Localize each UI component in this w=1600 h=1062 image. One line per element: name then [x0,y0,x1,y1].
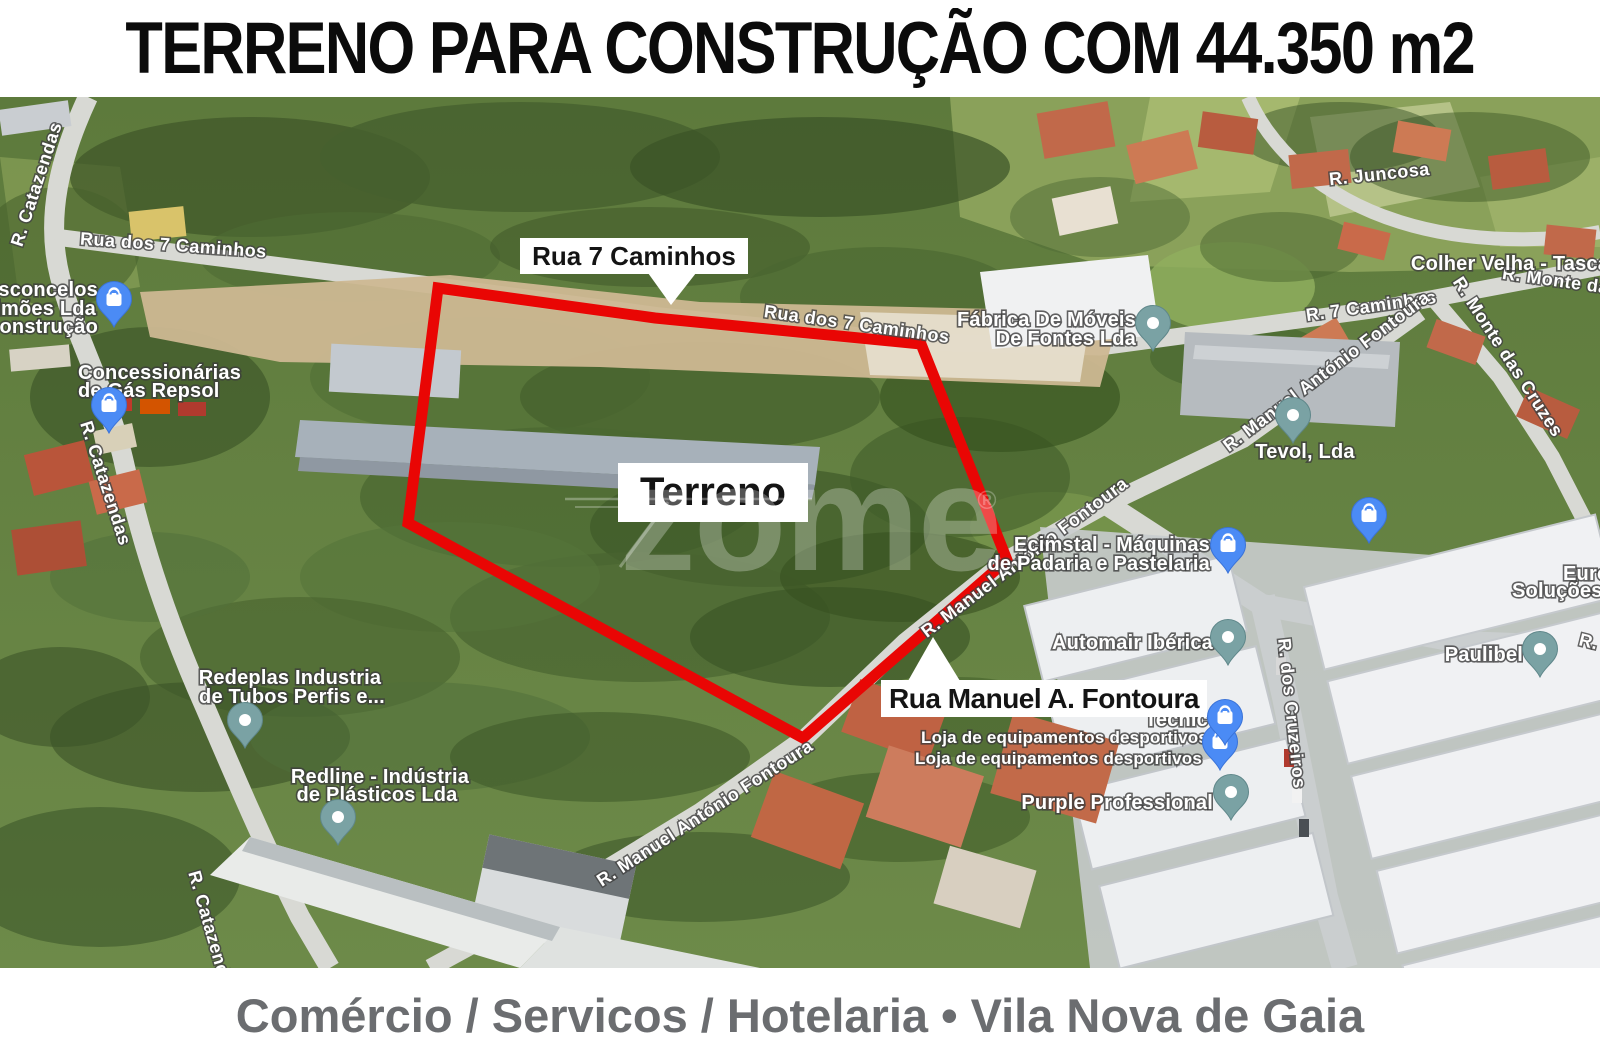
aerial-map[interactable]: R. Catazendas R. Catazendas R. Catazenda… [0,97,1600,968]
poi-purple[interactable]: Purple Professional [1021,792,1213,814]
poi-vasconcelos-3[interactable]: de construção [0,316,98,338]
poi-fabrica-2[interactable]: De Fontes Lda [996,328,1137,350]
poi-ecimstal-2[interactable]: de Padaria e Pastelaria [987,553,1210,575]
watermark-text: zome [620,433,1001,603]
footer-banner: Comércio / Servicos / Hotelaria • Vila N… [0,968,1600,1062]
zome-watermark: zome ® [565,433,1000,603]
poi-paulibel[interactable]: Paulibel [1445,644,1523,666]
listing-image: TERRENO PARA CONSTRUÇÃO COM 44.350 m2 [0,0,1600,1062]
poi-colher[interactable]: Colher Velha - Tasca [1411,253,1600,275]
callout-street-top-label: Rua 7 Caminhos [532,241,736,271]
poi-euro-2[interactable]: Soluções Indu [1512,580,1600,602]
poi-tevol[interactable]: Tevol, Lda [1255,441,1355,463]
watermark-reg: ® [977,485,996,515]
poi-redline-2[interactable]: de Plásticos Lda [296,784,458,806]
listing-title: TERRENO PARA CONSTRUÇÃO COM 44.350 m2 [126,7,1474,90]
listing-subtitle: Comércio / Servicos / Hotelaria • Vila N… [236,988,1364,1043]
poi-loja-2[interactable]: Loja de equipamentos desportivos [915,749,1202,768]
poi-loja-1[interactable]: Loja de equipamentos desportivos [921,728,1208,747]
poi-automair[interactable]: Automair Ibérica [1052,632,1214,654]
header-banner: TERRENO PARA CONSTRUÇÃO COM 44.350 m2 [0,0,1600,97]
poi-redeplas-2[interactable]: de Tubos Perfis e... [199,686,385,708]
callout-street-bottom-label: Rua Manuel A. Fontoura [889,683,1200,714]
